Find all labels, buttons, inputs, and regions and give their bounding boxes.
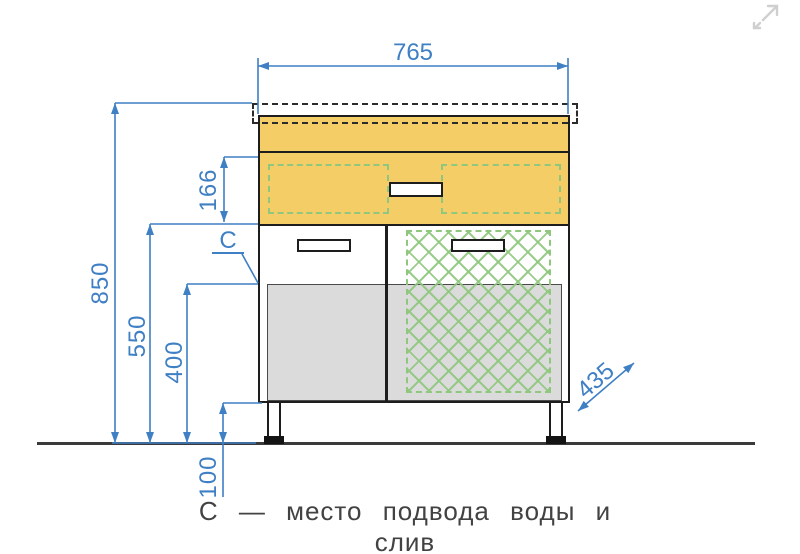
center-divider	[385, 226, 388, 401]
cabinet-leg-left	[267, 403, 281, 437]
leg-foot-left	[264, 436, 284, 444]
cabinet-leg-right	[549, 403, 563, 437]
upper-drawer-handle	[389, 182, 443, 197]
expand-icon[interactable]	[748, 2, 784, 32]
dim-label-550: 550	[126, 301, 150, 371]
caption-text: С — место подвода воды и слив	[170, 496, 640, 554]
c-leader-line	[242, 254, 258, 283]
dim-label-width: 765	[258, 41, 568, 65]
drawing-canvas: 765 850 550 400 166 100 435 С С — место …	[0, 0, 800, 554]
drawer-inner-outline-left	[268, 164, 389, 214]
left-drawer-handle	[297, 239, 351, 252]
callout-c-label: С	[212, 227, 244, 254]
drawer-inner-outline-right	[441, 164, 561, 214]
right-drawer-handle	[451, 239, 505, 252]
dim-label-total-height: 850	[89, 248, 113, 318]
leg-foot-right	[546, 436, 566, 444]
dim-label-166: 166	[197, 155, 221, 225]
basket-lattice-area	[406, 230, 551, 393]
floor-line	[37, 442, 755, 445]
dim-label-400: 400	[163, 327, 187, 397]
countertop-hidden-outline	[252, 103, 578, 124]
dim-label-depth: 435	[563, 350, 629, 411]
